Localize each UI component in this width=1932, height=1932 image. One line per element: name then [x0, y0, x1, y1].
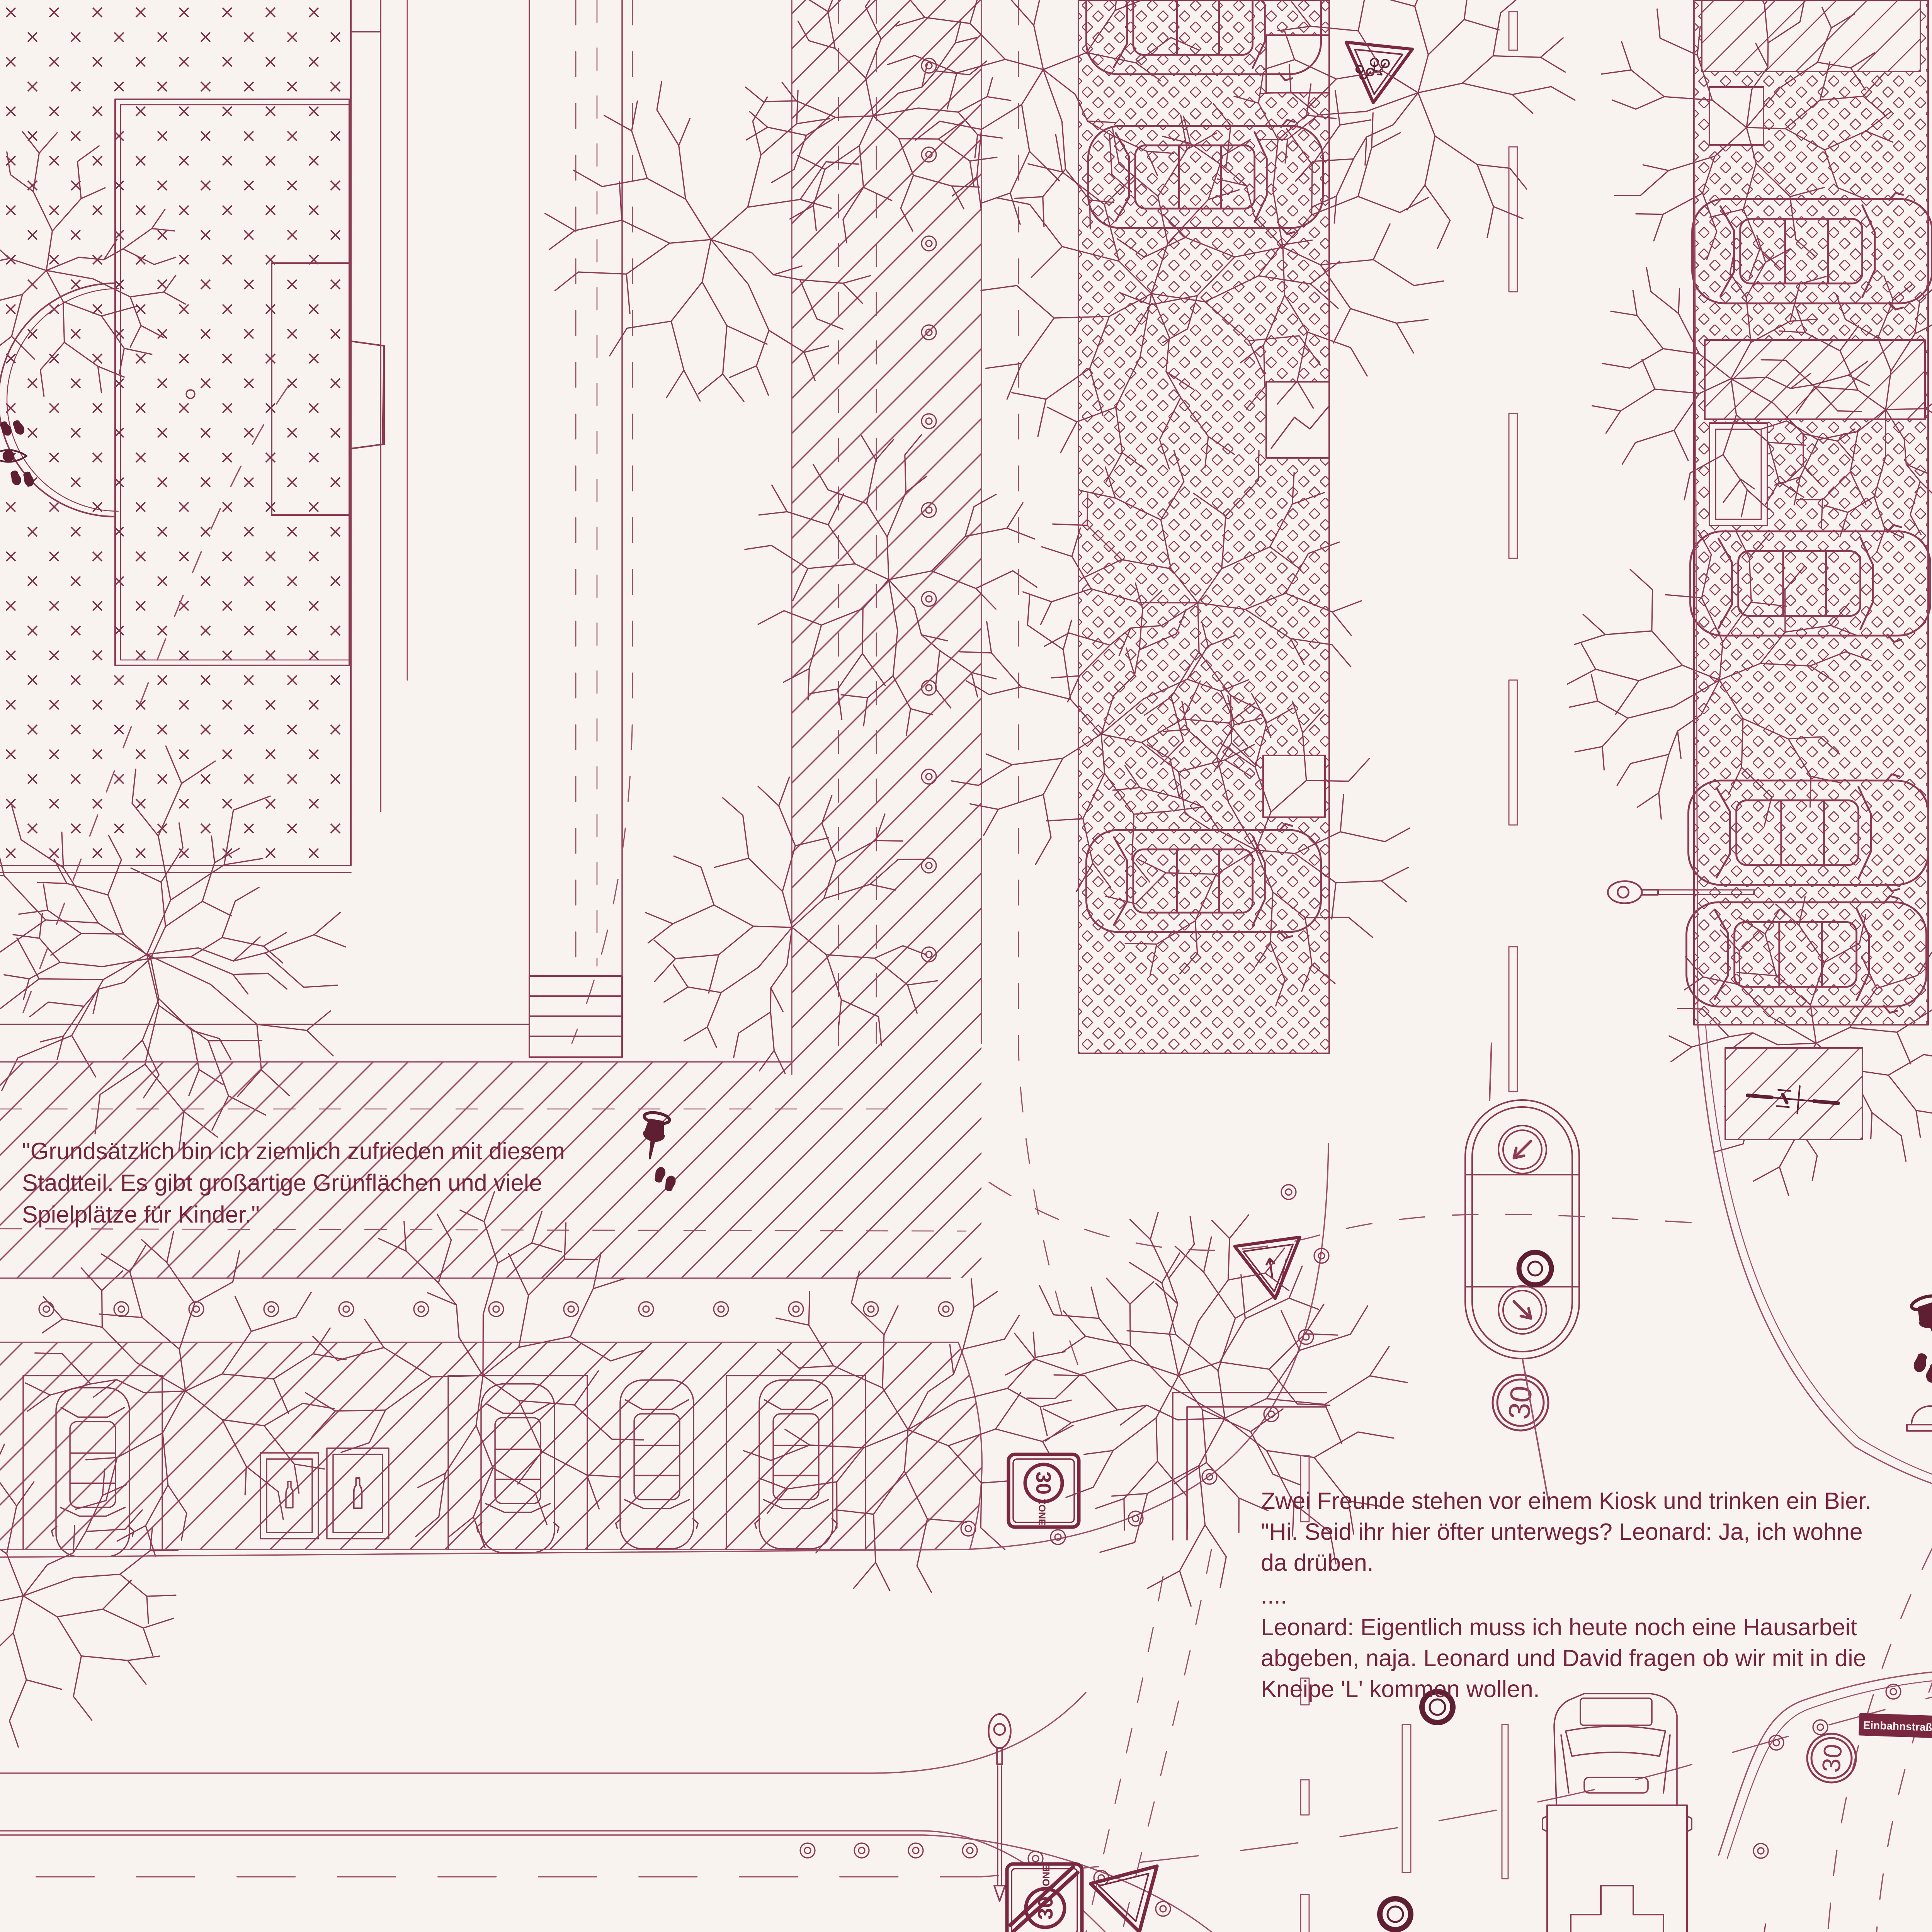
svg-text:Spielplätze für Kinder.": Spielplätze für Kinder."	[22, 1201, 260, 1228]
svg-text:Leonard: Eigentlich muss ich h: Leonard: Eigentlich muss ich heute noch …	[1261, 1614, 1857, 1640]
svg-text:....: ....	[1261, 1582, 1287, 1609]
svg-text:"Grundsätzlich bin ich ziemlic: "Grundsätzlich bin ich ziemlich zufriede…	[22, 1138, 565, 1164]
svg-text:30: 30	[1816, 1743, 1847, 1774]
svg-text:"Hi. Seid ihr hier öfter unter: "Hi. Seid ihr hier öfter unterwegs? Leon…	[1261, 1519, 1863, 1545]
svg-text:da drüben.: da drüben.	[1261, 1549, 1374, 1576]
svg-text:Stadtteil. Es gibt großartige: Stadtteil. Es gibt großartige Grünfläche…	[22, 1170, 542, 1196]
svg-text:30: 30	[1032, 1471, 1055, 1495]
svg-text:Zwei Freunde stehen vor einem: Zwei Freunde stehen vor einem Kiosk und …	[1261, 1488, 1871, 1514]
svg-text:Kneipe 'L' kommen wollen.: Kneipe 'L' kommen wollen.	[1261, 1676, 1540, 1702]
svg-text:abgeben, naja. Leonard und Dav: abgeben, naja. Leonard und David fragen …	[1261, 1645, 1866, 1671]
svg-text:ZONE: ZONE	[1036, 1498, 1047, 1525]
